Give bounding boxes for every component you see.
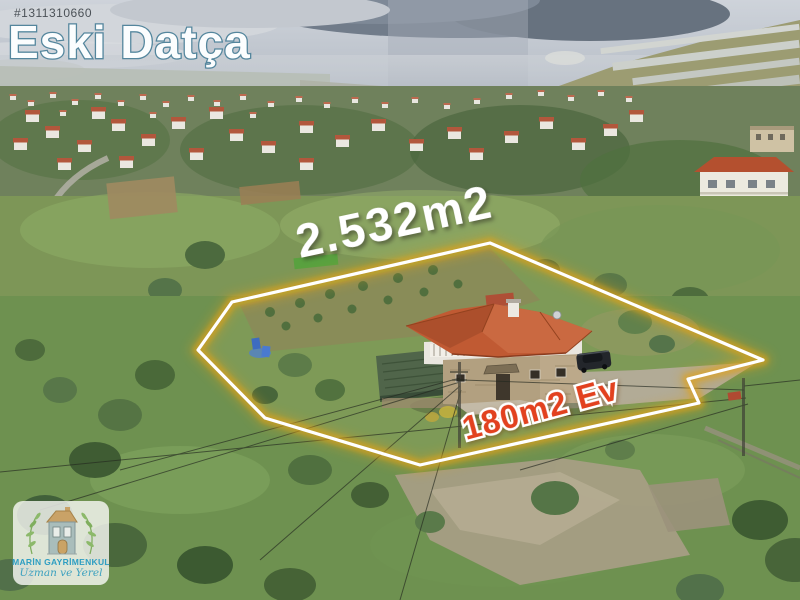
page-title: Eski Datça [8, 16, 251, 68]
house-with-leaves-icon [23, 506, 99, 556]
smoke-puff [545, 51, 585, 65]
agency-logo: MARİN GAYRİMENKUL Uzman ve Yerel [13, 501, 109, 585]
agency-tagline: Uzman ve Yerel [19, 567, 102, 579]
beige-building [750, 126, 794, 152]
chimney [508, 301, 519, 317]
listing-photo: #1311310660 Eski Datça 2.532m2 180m2 Ev … [0, 0, 800, 600]
agency-name: MARİN GAYRİMENKUL [12, 557, 110, 567]
window [530, 370, 540, 379]
aerial-photo: #1311310660 Eski Datça 2.532m2 180m2 Ev [0, 0, 800, 600]
window [556, 368, 566, 377]
utility-pole [458, 362, 461, 448]
front-door [496, 374, 510, 400]
white-villa [694, 157, 794, 202]
satellite-dish [553, 311, 561, 319]
entry-canopy [484, 364, 519, 374]
flower-bush [425, 412, 439, 422]
